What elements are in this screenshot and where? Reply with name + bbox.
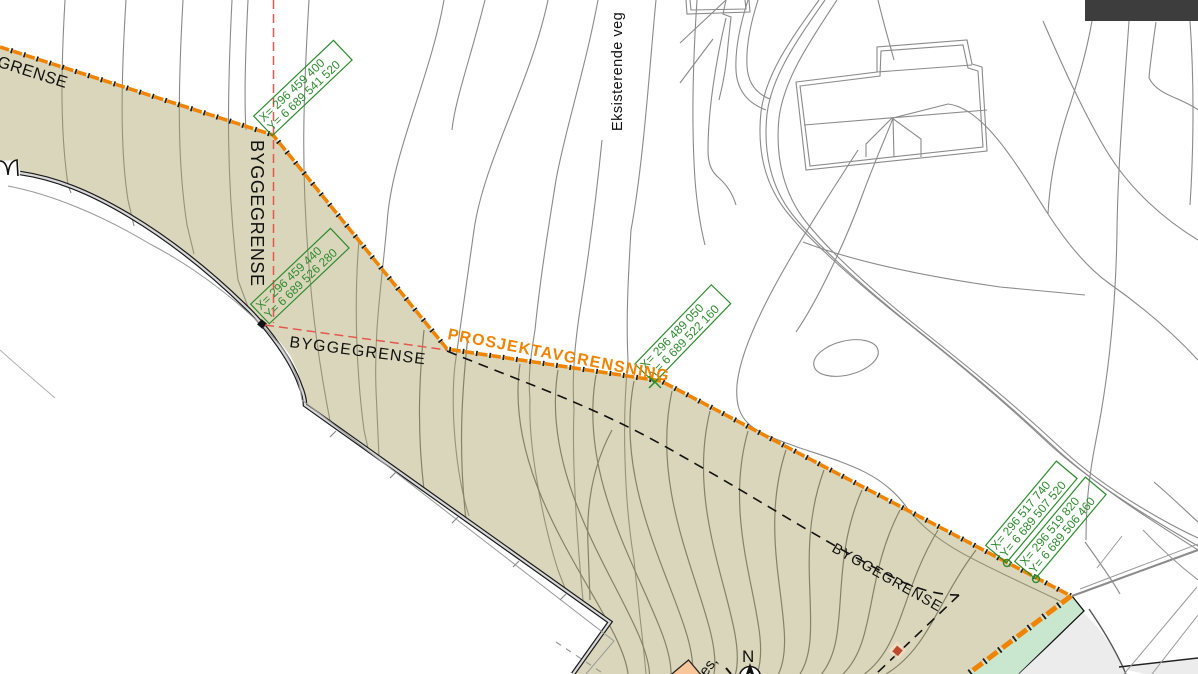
svg-text:BYGGEGRENSE: BYGGEGRENSE xyxy=(247,140,267,287)
svg-text:Eksisterende veg: Eksisterende veg xyxy=(610,12,626,131)
svg-text:N: N xyxy=(742,647,754,666)
